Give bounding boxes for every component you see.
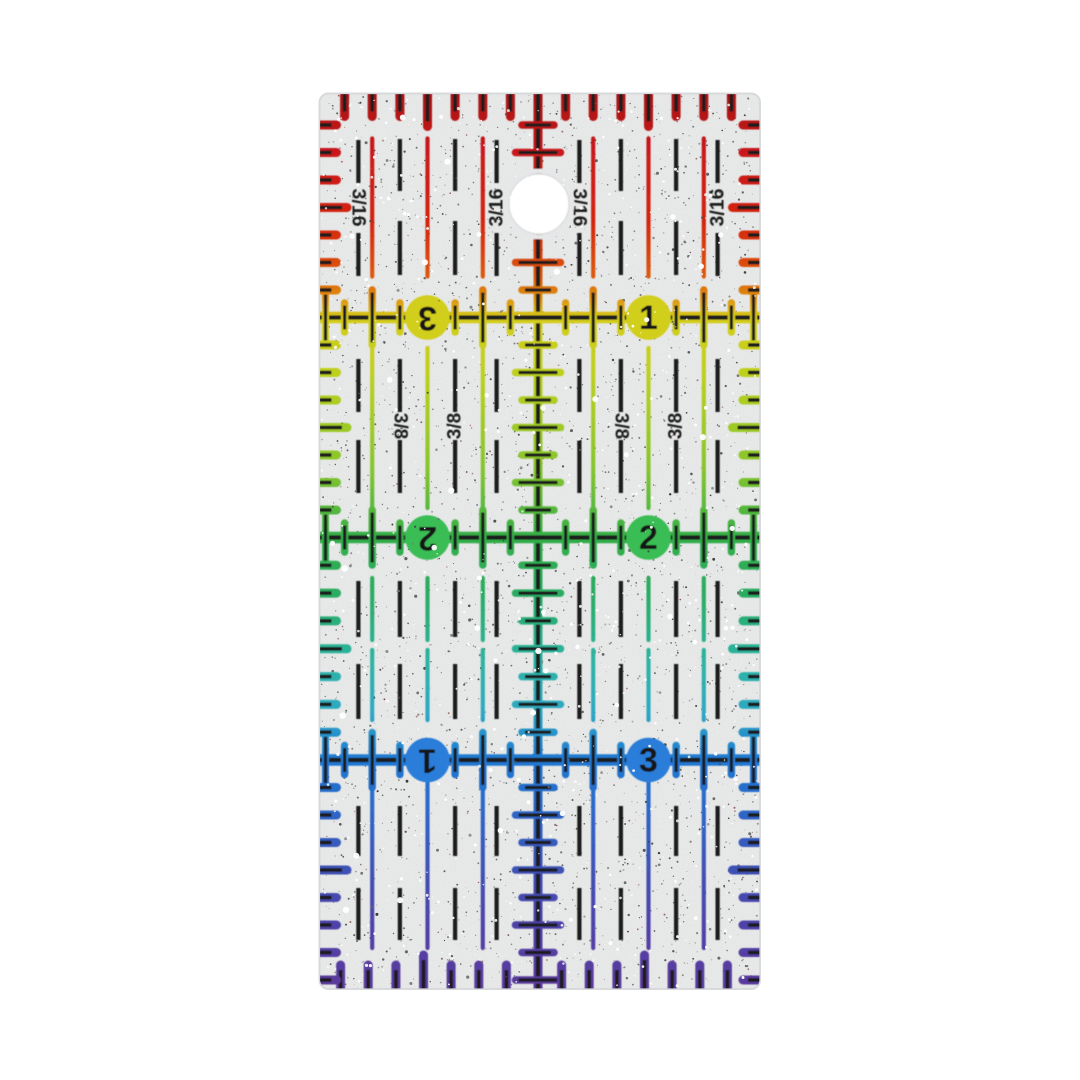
svg-text:3/16: 3/16 xyxy=(347,189,369,227)
svg-text:1: 1 xyxy=(418,742,437,780)
svg-text:2: 2 xyxy=(418,519,437,557)
svg-text:3/8: 3/8 xyxy=(389,413,410,439)
svg-text:3: 3 xyxy=(418,299,437,337)
svg-text:3/8: 3/8 xyxy=(445,413,466,439)
svg-text:3: 3 xyxy=(639,742,658,780)
svg-text:3/8: 3/8 xyxy=(610,413,631,439)
svg-text:3/8: 3/8 xyxy=(666,413,687,439)
